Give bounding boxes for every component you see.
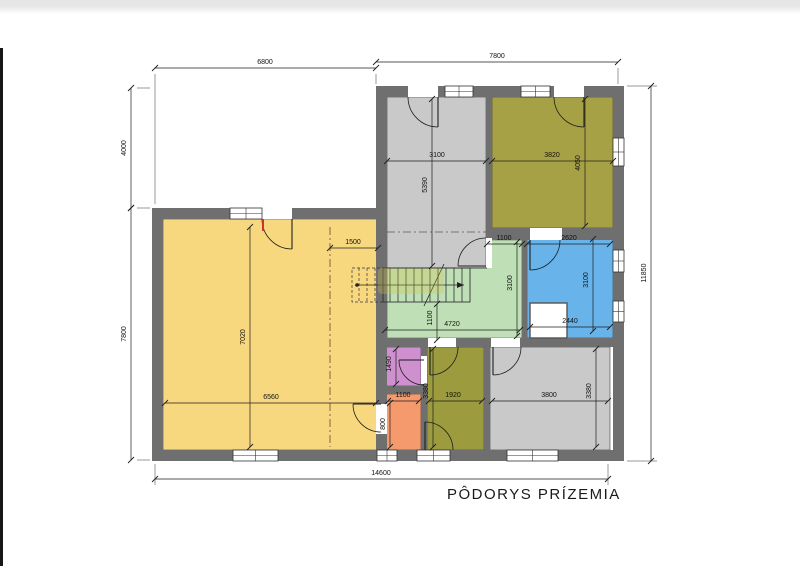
wall [152, 208, 163, 461]
dimension: 6800 [152, 59, 379, 71]
dim-label: 1100 [496, 235, 511, 242]
page: 6800780040007800118501460031003820539040… [0, 0, 800, 566]
door-opening [491, 338, 520, 347]
window [230, 208, 262, 219]
room-room-top-right [492, 97, 613, 228]
dim-label: 1100 [395, 392, 410, 399]
dim-label: 3820 [544, 152, 560, 159]
window [377, 450, 397, 461]
door-opening [530, 228, 562, 240]
dimension: 7800 [373, 53, 621, 65]
dim-label: 1920 [445, 392, 461, 399]
window [521, 86, 550, 97]
left-edge-bar [0, 48, 3, 566]
dim-label: 5390 [422, 177, 429, 193]
dim-label: 7800 [121, 326, 128, 342]
window [613, 138, 624, 166]
dim-label: 11850 [641, 263, 648, 282]
wall [522, 240, 527, 338]
dim-label: 1100 [427, 310, 434, 325]
dim-label: 1490 [386, 356, 393, 372]
window [507, 450, 558, 461]
dim-label: 2440 [562, 318, 578, 325]
dim-label: 3100 [429, 152, 445, 159]
dimension: 11850 [641, 83, 654, 464]
room-living-room [163, 219, 378, 450]
dim-label: 3380 [423, 383, 430, 399]
dim-label: 3100 [583, 272, 590, 288]
window [613, 250, 624, 272]
dim-label: 7800 [489, 53, 505, 60]
dim-label: 14600 [371, 470, 391, 477]
dim-label: 3100 [507, 275, 514, 291]
dim-label: 4000 [121, 140, 128, 156]
dim-label: 3800 [541, 392, 557, 399]
floorplan-svg: 6800780040007800118501460031003820539040… [0, 0, 800, 566]
dim-label: 4050 [575, 155, 582, 171]
dimension: 4000 [121, 85, 134, 211]
dim-label: 4720 [444, 321, 460, 328]
dim-label: 800 [380, 418, 387, 430]
stair-walk-start [355, 283, 359, 287]
window [613, 301, 624, 322]
dim-label: 7020 [240, 329, 247, 345]
window [417, 450, 450, 461]
dimension: 7800 [121, 205, 134, 463]
watermark [378, 268, 444, 294]
window [233, 450, 278, 461]
dim-label: 2620 [561, 235, 577, 242]
door-opening [262, 208, 292, 219]
door-opening [408, 86, 438, 97]
dim-label: 1500 [345, 239, 361, 246]
dimension: 14600 [152, 470, 611, 482]
door-opening [554, 86, 584, 97]
window [445, 86, 473, 97]
dim-label: 3380 [586, 383, 593, 399]
room-pantry [386, 394, 421, 450]
top-edge-strip [0, 0, 800, 14]
door-opening [428, 338, 456, 347]
drawing-title: PÔDORYS PRÍZEMIA [447, 486, 609, 503]
dim-label: 6800 [257, 59, 273, 66]
dim-label: 6560 [263, 394, 279, 401]
